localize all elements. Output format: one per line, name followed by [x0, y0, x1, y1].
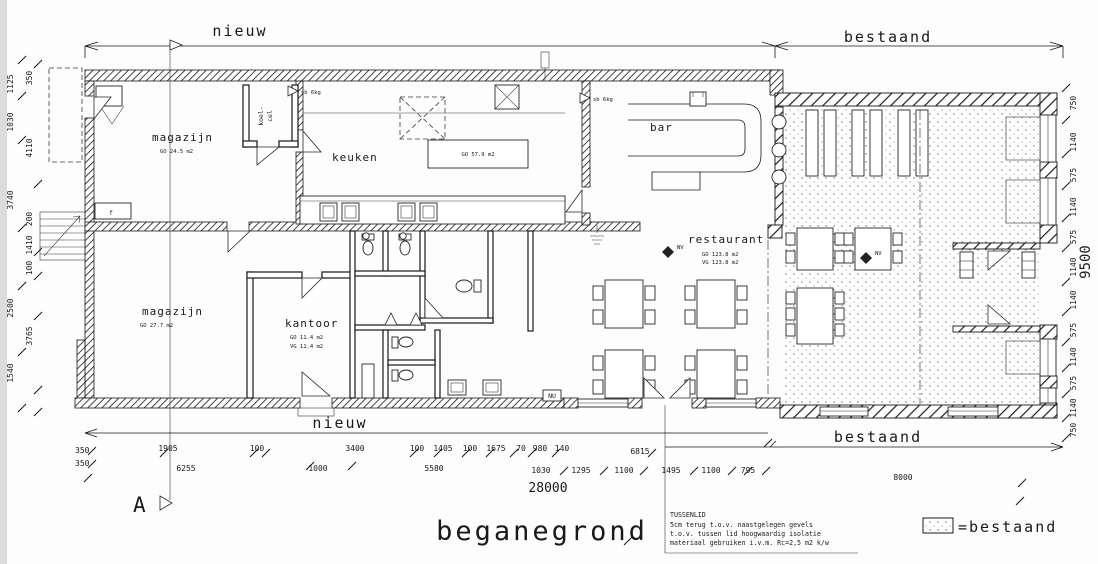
dim: 1100: [614, 466, 633, 475]
room-label-koelcel-2: cel: [266, 110, 274, 122]
dim: 70: [516, 444, 526, 453]
dim: 100: [463, 444, 478, 453]
dim: 575: [1069, 168, 1078, 183]
dim: 1125: [6, 74, 15, 93]
table-6: [786, 288, 844, 344]
room-area-restaurant-go: GO 123.8 m2: [702, 252, 738, 258]
section-marker-a: A: [133, 493, 146, 517]
room-label-restaurant: restaurant: [688, 233, 764, 246]
new-building-walls: [75, 70, 783, 408]
room-area-kantoor-go: GO 11.4 m2: [290, 335, 323, 341]
dim-total-6815: 6815: [630, 447, 649, 456]
restaurant-tables: [593, 280, 747, 398]
dim: 1140: [1069, 290, 1078, 309]
note-line: materiaal gebruiken i.v.m. Rc=2,5 m2 k/w: [670, 539, 829, 547]
dim: 100: [250, 444, 265, 453]
dim: 1140: [1069, 398, 1078, 417]
room-area-magazijn-bottom: GO 27.7 m2: [140, 323, 173, 329]
room-area-magazijn-top: GO 24.5 m2: [160, 149, 193, 155]
dim: 1495: [661, 466, 680, 475]
toilet: [392, 370, 413, 381]
top-dimension-line: nieuw bestaand: [85, 22, 1063, 58]
vent-symbol: NV: [662, 245, 684, 258]
dim: 140: [555, 444, 570, 453]
label-bestaand-top: bestaand: [844, 28, 932, 46]
dim: 795: [741, 466, 756, 475]
worktop-area-label: GO 57.9 m2: [461, 152, 494, 158]
dim: 1100: [701, 466, 720, 475]
toilet: [392, 337, 413, 348]
koelcel-room: koel- cel: [243, 85, 298, 165]
dim: 5580: [424, 464, 443, 473]
dim: 1405: [433, 444, 452, 453]
room-label-bar: bar: [650, 121, 673, 134]
dim: 1000: [308, 464, 327, 473]
south-windows-new: [578, 399, 756, 407]
dim: 575: [1069, 230, 1078, 245]
dim: 980: [533, 444, 548, 453]
dim: 200: [25, 212, 34, 227]
closet-f: f: [95, 203, 131, 219]
right-dimension-numbers: 750 1140 575 1140 575 1140 1140 575 1140…: [1062, 84, 1094, 442]
bar-counter: [566, 92, 786, 212]
sink: [448, 380, 466, 395]
dim: 1140: [1069, 257, 1078, 276]
dim: 3740: [6, 190, 15, 209]
dim: 3400: [345, 444, 364, 453]
table-4: [685, 350, 747, 398]
dim: 1140: [1069, 197, 1078, 216]
drawing-title: beganegrond: [436, 516, 648, 547]
sink: [483, 380, 501, 395]
dim: 575: [1069, 376, 1078, 391]
dim: 100: [410, 444, 425, 453]
dim: 350: [25, 71, 34, 86]
dim: 1410: [25, 235, 34, 254]
dim: 100: [25, 261, 34, 276]
dim-total-9500: 9500: [1078, 245, 1094, 279]
exterior-stairs: [40, 212, 85, 260]
dim: 1295: [571, 466, 590, 475]
table-4: [685, 280, 747, 328]
room-label-kantoor: kantoor: [285, 317, 338, 330]
dim: 750: [1069, 423, 1078, 438]
dim: 575: [1069, 323, 1078, 338]
dim: 1030: [6, 112, 15, 131]
dim-350a: 350: [75, 446, 90, 455]
dim: 750: [1069, 96, 1078, 111]
dim: 4110: [25, 138, 34, 157]
vent-label: NV: [875, 251, 882, 257]
room-label-magazijn-bottom: magazijn: [142, 305, 203, 318]
tussenlid-note: TUSSENLID 5cm terug t.o.v. naastgelegen …: [665, 405, 858, 553]
label-nieuw-top: nieuw: [212, 22, 267, 40]
exit-sign-label: NU: [548, 392, 556, 400]
dim: 6255: [176, 464, 195, 473]
room-area-kantoor-vg: VG 11.4 m2: [290, 344, 323, 350]
exit-sign: NU: [543, 390, 561, 401]
room-area-restaurant-vg: VG 123.8 m2: [702, 260, 738, 266]
label-bestaand-bottom: bestaand: [834, 428, 922, 446]
floor-plan-drawing: nieuw bestaand: [0, 0, 1098, 564]
dim: 1140: [1069, 347, 1078, 366]
note-line: t.o.v. tussen lid hoogwaardig isolatie: [670, 530, 821, 538]
dim-total-28000: 28000: [528, 481, 567, 496]
room-label-koelcel-1: koel-: [257, 106, 265, 126]
toilet-accessible: [456, 280, 481, 292]
dim-350b: 350: [75, 459, 90, 468]
fire-extinguisher-label: sb 6kg: [301, 90, 321, 96]
dim: 2500: [6, 298, 15, 317]
dim: 1675: [486, 444, 505, 453]
room-label-magazijn-top: magazijn: [152, 131, 213, 144]
room-label-keuken: keuken: [332, 151, 378, 164]
radiator: [960, 252, 973, 278]
dim: 3765: [25, 326, 34, 345]
label-nieuw-bottom: nieuw: [312, 414, 367, 432]
label-f: f: [109, 209, 113, 217]
fire-extinguisher-label: sb 6kg: [593, 97, 613, 103]
bottom-dimension-numbers: 350 350 1905 100 3400 100 1405 100 1675 …: [75, 444, 913, 496]
dim: 1905: [158, 444, 177, 453]
note-line: 5cm terug t.o.v. naastgelegen gevels: [670, 521, 813, 529]
dim: 1540: [6, 363, 15, 382]
dim-total-8000: 8000: [893, 473, 912, 482]
table-4: [593, 280, 655, 328]
dim: 1140: [1069, 132, 1078, 151]
floor-plan-sheet: nieuw bestaand: [0, 0, 1098, 564]
radiator: [1022, 252, 1035, 278]
office-toilet-block: [228, 231, 533, 398]
vent-label: NV: [677, 245, 684, 251]
legend-label: =bestaand: [958, 518, 1057, 536]
note-title: TUSSENLID: [670, 511, 706, 519]
dim: 1030: [531, 466, 550, 475]
left-dimension-numbers: 1125 350 1030 4110 3740 200 1410 100 250…: [6, 56, 42, 416]
legend: =bestaand: [923, 518, 1057, 536]
